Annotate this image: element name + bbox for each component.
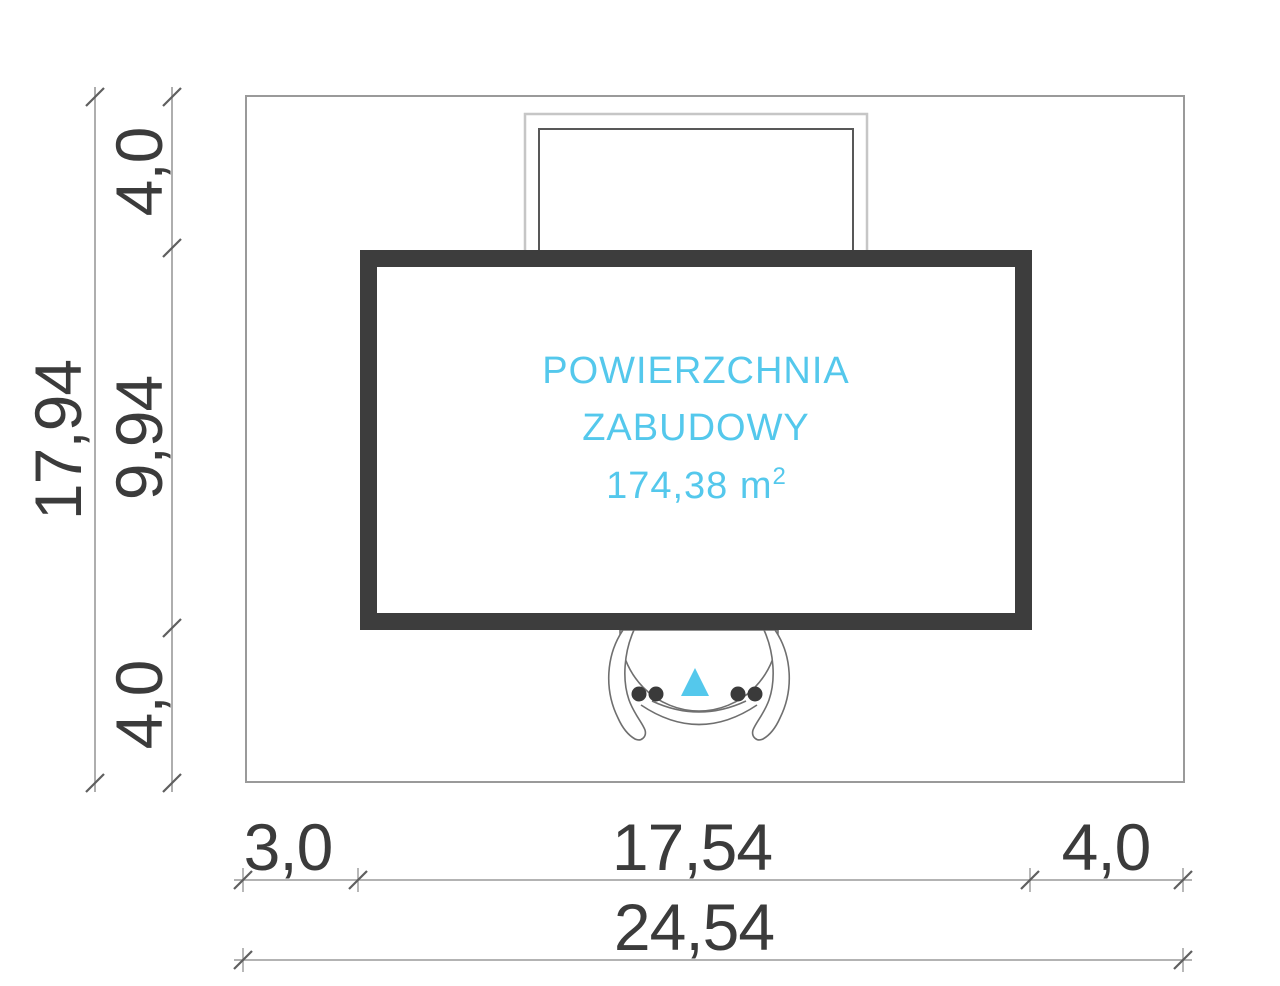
entrance-post-dot [632, 687, 647, 702]
dim-bottom-middle: 17,54 [612, 814, 772, 880]
site-plan-drawing: POWIERZCHNIA ZABUDOWY 174,38 m2 17,94 4,… [0, 0, 1280, 986]
dim-bottom-total: 24,54 [614, 894, 774, 960]
entrance-post-dot [649, 687, 664, 702]
area-label-line2: ZABUDOWY [582, 409, 810, 447]
entrance-stairs [609, 630, 790, 740]
dim-bottom-left: 3,0 [244, 814, 333, 880]
entrance-post-dot [748, 687, 763, 702]
dim-left-total: 17,94 [25, 360, 91, 520]
entrance-post-dot [731, 687, 746, 702]
top-structure-inner-outline [539, 129, 853, 252]
dim-left-top: 4,0 [106, 128, 172, 217]
area-value-superscript: 2 [773, 463, 786, 490]
dim-bottom-right: 4,0 [1062, 814, 1151, 880]
area-label-line1: POWIERZCHNIA [542, 352, 850, 390]
dim-left-bottom: 4,0 [106, 661, 172, 750]
area-value: 174,38 m2 [606, 465, 786, 505]
dim-left-middle: 9,94 [106, 376, 172, 500]
area-value-number: 174,38 m [606, 465, 772, 507]
